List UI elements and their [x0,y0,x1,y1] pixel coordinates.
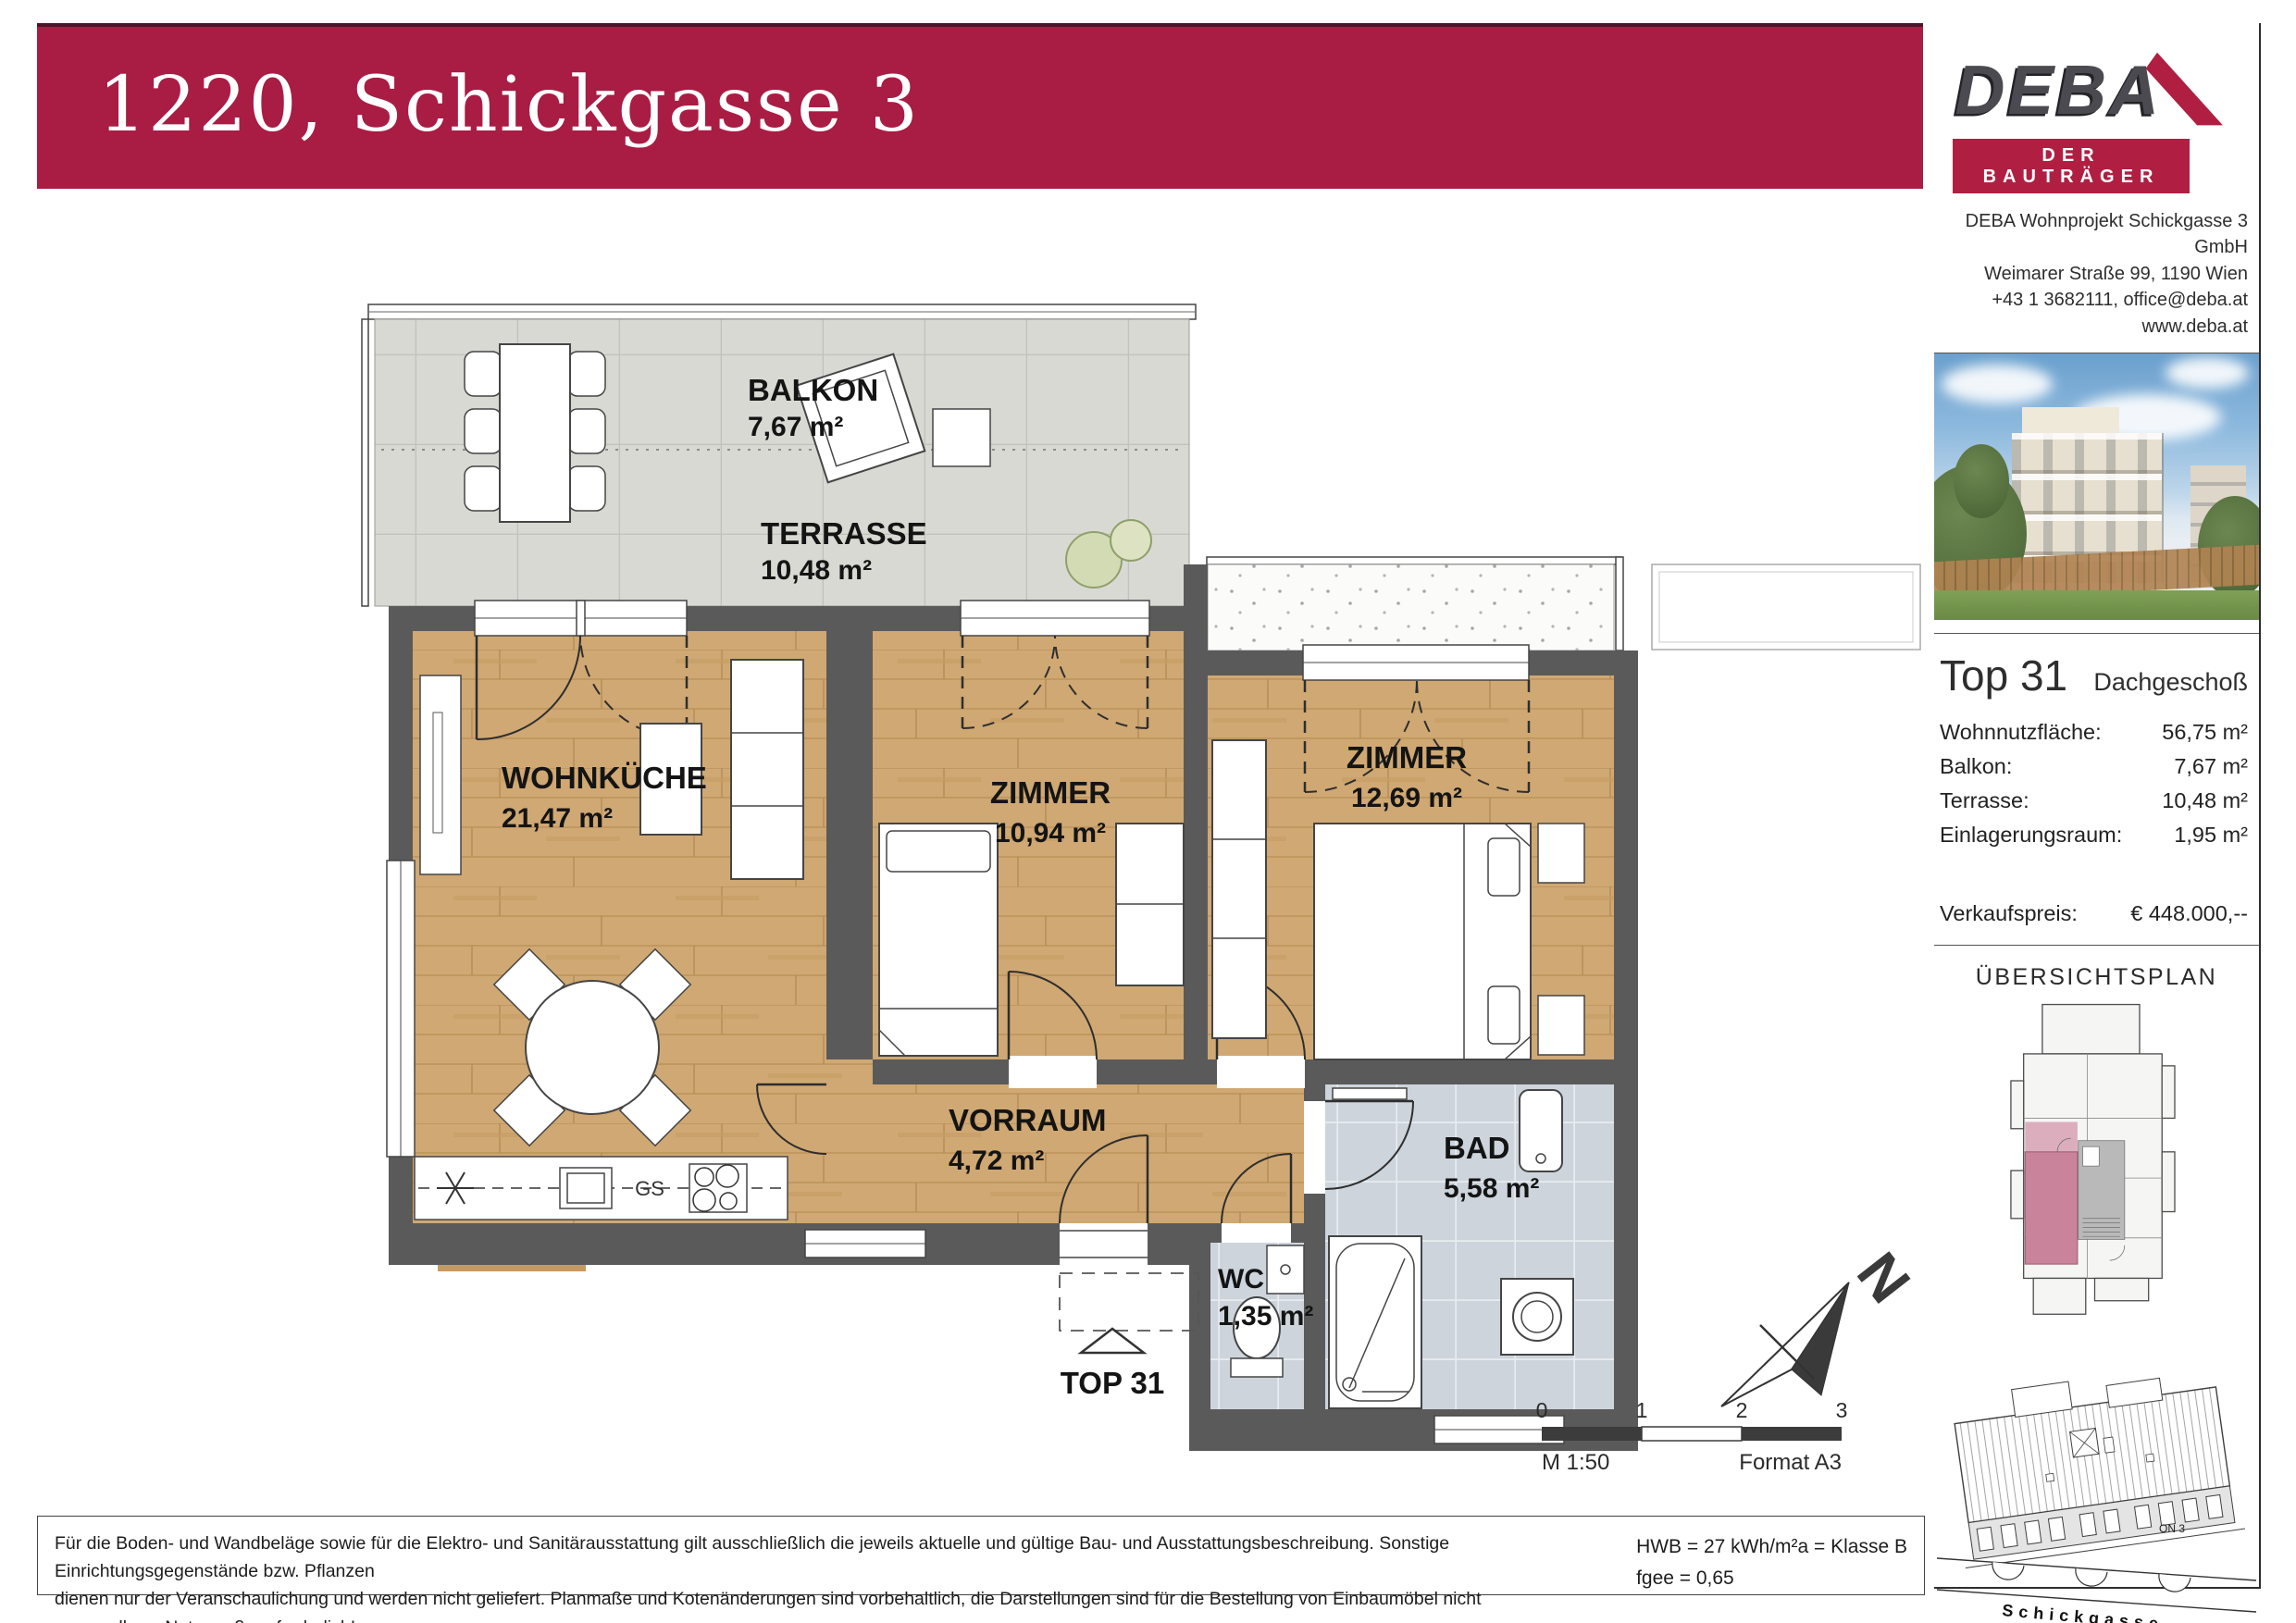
unit-info: Top 31 Dachgeschoß Wohnnutzfläche: 56,75… [1934,650,2259,932]
header-banner: 1220, Schickgasse 3 [37,23,1923,189]
format-label: Format A3 [1739,1450,1842,1475]
highlight-unit-upper [2025,1121,2078,1151]
detail-row: Wohnnutzfläche: 56,75 m² [1940,715,2248,750]
energy-line2: fgee = 0,65 [1636,1563,1907,1594]
deba-tagline: DER BAUTRÄGER [1953,139,2190,193]
divider [1934,945,2259,946]
neighbor-strip [1652,564,1920,650]
detail-row: Terrasse: 10,48 m² [1940,784,2248,818]
unit-title: Top 31 [1940,650,2067,700]
unit-floor: Dachgeschoß [2093,668,2248,697]
floor-plan: GS [213,176,1925,1508]
room-label-vorraum: VORRAUM [949,1103,1107,1137]
scale-tick: 3 [1836,1398,1848,1422]
disclaimer-line2: dienen nur der Veranschaulichung und wer… [55,1585,1572,1623]
row-value: 7,67 m² [2174,750,2248,784]
terrace-area [362,304,1920,650]
company-website: www.deba.at [1934,314,2248,340]
room-label-balkon: BALKON [748,373,878,407]
price-value: € 448.000,-- [2130,897,2248,931]
detail-row: Balkon: 7,67 m² [1940,750,2248,784]
price-row: Verkaufspreis: € 448.000,-- [1940,897,2248,931]
dishwasher-label: GS [635,1177,664,1200]
room-label-zimmer1: ZIMMER [990,775,1111,810]
energy-info: HWB = 27 kWh/m²a = Klasse B fgee = 0,65 [1636,1531,1907,1593]
room-label-bad: BAD [1444,1131,1510,1165]
sidebar: DEBA DEBA DER BAUTRÄGER DEBA Wohnprojekt… [1934,23,2261,1589]
deba-logo: DEBA DEBA [1945,47,2259,137]
page-title: 1220, Schickgasse 3 [98,61,920,149]
deba-logo-icon: DEBA DEBA [1945,47,2241,132]
scale-tick: 0 [1536,1398,1548,1422]
disclaimer-text: Für die Boden- und Wandbeläge sowie für … [55,1530,1572,1623]
scale-tick: 1 [1636,1398,1648,1422]
dining-table-set [465,344,605,522]
disclaimer-line1: Für die Boden- und Wandbeläge sowie für … [55,1530,1572,1585]
company-info: DEBA Wohnprojekt Schickgasse 3 GmbH Weim… [1934,208,2248,340]
scale-label: M 1:50 [1542,1450,1609,1475]
towel-radiator [1333,1088,1407,1099]
room-area-balkon: 7,67 m² [748,412,843,442]
deba-logo-text: DEBA [1955,51,2162,129]
side-table [933,409,990,466]
site-plan: ON 3 Schickgasse [1934,1347,2259,1623]
room-label-wohnkueche: WOHNKÜCHE [502,761,707,795]
row-value: 56,75 m² [2162,715,2248,750]
detail-row: Einlagerungsraum: 1,95 m² [1940,818,2248,852]
balcony-floor [1208,564,1614,650]
shelf [731,660,803,879]
unit-detail-rows: Wohnnutzfläche: 56,75 m² Balkon: 7,67 m²… [1940,715,2248,853]
balcony-area [1207,557,1623,650]
street: Schickgasse [1937,1558,2256,1623]
divider [1934,633,2259,634]
row-value: 10,48 m² [2162,784,2248,818]
price-label: Verkaufspreis: [1940,897,2078,931]
company-contact: +43 1 3682111, office@deba.at [1934,287,2248,313]
energy-line1: HWB = 27 kWh/m²a = Klasse B [1636,1531,1907,1563]
overview-title: ÜBERSICHTSPLAN [1934,964,2259,991]
row-label: Terrasse: [1940,784,2029,818]
bath-sink-icon [1520,1090,1562,1171]
entry-arrow-icon [1081,1329,1144,1353]
room-area-terrasse: 10,48 m² [761,555,872,586]
company-name: DEBA Wohnprojekt Schickgasse 3 GmbH [1934,208,2248,261]
unit-marker-label: TOP 31 [1061,1366,1165,1400]
room-label-terrasse: TERRASSE [761,516,927,551]
row-label: Balkon: [1940,750,2012,784]
footer: Für die Boden- und Wandbeläge sowie für … [37,1516,1925,1595]
room-label-wc: WC [1218,1264,1264,1295]
site-note: ON 3 [2159,1522,2185,1535]
washing-machine-icon [1501,1279,1573,1355]
row-label: Wohnnutzfläche: [1940,715,2102,750]
storage-dashed-outline [1060,1273,1198,1331]
building-footprint [1942,1359,2245,1567]
overview-plan [1934,991,2259,1343]
nightstand [1538,996,1584,1055]
sideboard [420,675,461,874]
north-arrow-icon: N [1721,1240,1923,1406]
room-area-wc: 1,35 m² [1218,1301,1313,1332]
building-photo [1934,353,2259,620]
row-value: 1,95 m² [2174,818,2248,852]
room-area-vorraum: 4,72 m² [949,1146,1044,1176]
room-label-zimmer2: ZIMMER [1347,740,1467,774]
room-area-zimmer1: 10,94 m² [995,818,1106,849]
scale-tick: 2 [1736,1398,1748,1422]
room-area-bad: 5,58 m² [1444,1173,1539,1204]
cooktop-icon [689,1164,747,1212]
room-area-zimmer2: 12,69 m² [1351,783,1462,813]
row-label: Einlagerungsraum: [1940,818,2122,852]
bathtub-icon [1329,1236,1421,1408]
kitchen-counter: GS [415,1157,788,1220]
company-address: Weimarer Straße 99, 1190 Wien [1934,261,2248,287]
north-label: N [1844,1240,1923,1315]
nightstand [1538,824,1584,883]
room-area-wohnkueche: 21,47 m² [502,803,613,834]
highlight-unit-top31 [2025,1151,2078,1263]
page: 1220, Schickgasse 3 [0,0,2296,1623]
entry-marker: TOP 31 [1061,1329,1165,1400]
wardrobe [1212,740,1266,1038]
small-basin-icon [1267,1245,1304,1294]
